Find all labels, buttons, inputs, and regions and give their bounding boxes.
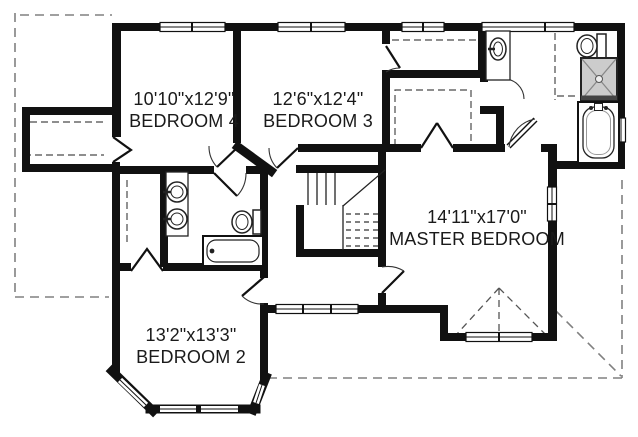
roofline-dashed xyxy=(15,13,622,378)
master-bathroom-fixtures xyxy=(486,31,619,163)
bedroom3-door xyxy=(277,148,298,168)
room-dims: 14'11"x17'0" xyxy=(389,206,565,228)
hall-bath-toilet xyxy=(232,210,261,234)
bedroom4-closet-bifold-door xyxy=(113,137,131,162)
walls xyxy=(22,23,625,380)
hall-bath-door xyxy=(214,173,237,196)
room-dims: 10'10"x12'9" xyxy=(129,88,239,110)
room-name: BEDROOM 3 xyxy=(263,110,373,132)
bedroom4-door xyxy=(217,146,239,167)
hall-bathroom-fixtures xyxy=(163,172,263,266)
room-label-bedroom-3: 12'6"x12'4" BEDROOM 3 xyxy=(263,88,373,132)
master-bath-door xyxy=(507,118,537,148)
room-dims: 13'2"x13'3" xyxy=(136,324,246,346)
bedroom3-closet-door xyxy=(386,46,400,68)
room-name: BEDROOM 4 xyxy=(129,110,239,132)
room-name: MASTER BEDROOM xyxy=(389,228,565,250)
room-label-bedroom-2: 13'2"x13'3" BEDROOM 2 xyxy=(136,324,246,368)
angled-walls xyxy=(112,147,271,411)
master-bath-toilet xyxy=(577,34,606,58)
gable-dashed-lines xyxy=(456,288,545,335)
room-name: BEDROOM 2 xyxy=(136,346,246,368)
master-bedroom-door xyxy=(382,271,404,293)
bedroom2-door xyxy=(242,277,264,296)
floor-plan: 10'10"x12'9" BEDROOM 4 12'6"x12'4" BEDRO… xyxy=(0,0,638,437)
bedroom2-closet-bifold-door xyxy=(131,249,163,271)
staircase xyxy=(308,170,385,250)
master-bath-tub xyxy=(578,102,619,163)
room-label-bedroom-4: 10'10"x12'9" BEDROOM 4 xyxy=(129,88,239,132)
master-closet-double-doors xyxy=(421,123,453,148)
room-label-master-bedroom: 14'11"x17'0" MASTER BEDROOM xyxy=(389,206,565,250)
master-bath-shower xyxy=(581,58,617,100)
hall-bath-tub xyxy=(203,236,263,266)
room-dims: 12'6"x12'4" xyxy=(263,88,373,110)
stair-lower-flight-dashed xyxy=(346,214,382,246)
